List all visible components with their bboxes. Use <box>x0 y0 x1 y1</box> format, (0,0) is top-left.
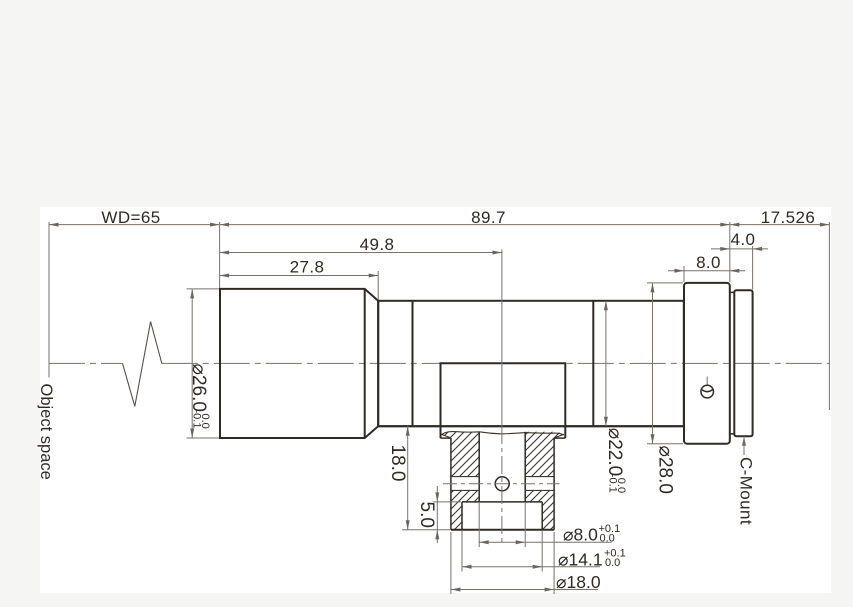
svg-text:C-Mount: C-Mount <box>737 457 756 525</box>
svg-text:⌀8.0: ⌀8.0 <box>563 524 598 544</box>
svg-text:4.0: 4.0 <box>731 230 756 249</box>
svg-text:Object space: Object space <box>37 384 55 480</box>
svg-text:8.0: 8.0 <box>696 253 721 272</box>
svg-text:⌀22.0: ⌀22.0 <box>604 428 625 476</box>
svg-text:27.8: 27.8 <box>290 258 325 277</box>
svg-text:0.0: 0.0 <box>600 532 615 544</box>
svg-text:49.8: 49.8 <box>360 235 395 254</box>
svg-text:⌀14.1: ⌀14.1 <box>558 549 603 569</box>
svg-text:WD=65: WD=65 <box>101 208 160 227</box>
svg-text:0.0: 0.0 <box>605 557 620 569</box>
svg-text:⌀28.0: ⌀28.0 <box>655 446 676 494</box>
svg-text:⌀26.0: ⌀26.0 <box>188 364 209 412</box>
svg-text:⌀18.0: ⌀18.0 <box>556 572 601 592</box>
svg-text:17.526: 17.526 <box>761 208 815 227</box>
svg-text:18.0: 18.0 <box>387 445 408 482</box>
svg-text:5.0: 5.0 <box>416 502 437 528</box>
svg-text:-0.1: -0.1 <box>191 410 203 429</box>
svg-text:-0.1: -0.1 <box>607 474 619 493</box>
svg-text:89.7: 89.7 <box>471 208 506 227</box>
